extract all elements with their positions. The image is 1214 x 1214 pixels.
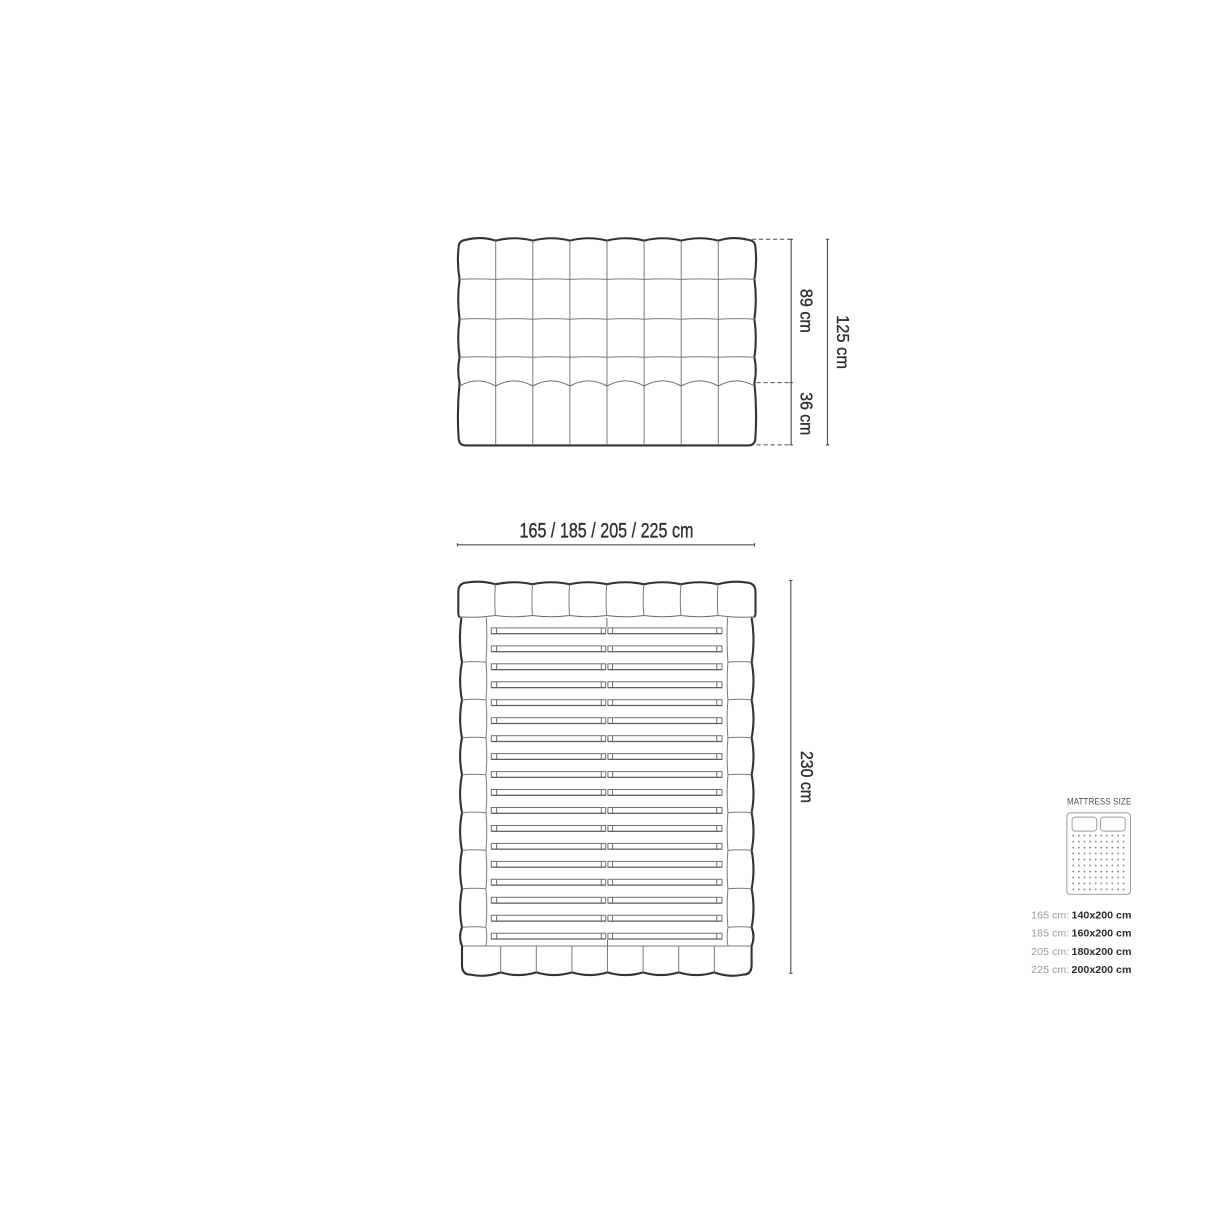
svg-text:225 cm:: 225 cm: bbox=[1031, 965, 1069, 976]
svg-text:165 cm:: 165 cm: bbox=[1031, 910, 1069, 921]
svg-text:36 cm: 36 cm bbox=[797, 392, 817, 435]
svg-text:180x200 cm: 180x200 cm bbox=[1072, 947, 1132, 958]
svg-text:89 cm: 89 cm bbox=[797, 289, 817, 333]
svg-text:MATTRESS SIZE: MATTRESS SIZE bbox=[1067, 797, 1132, 807]
svg-text:125 cm: 125 cm bbox=[833, 315, 853, 369]
svg-text:200x200 cm: 200x200 cm bbox=[1072, 965, 1132, 976]
svg-text:165 / 185 / 205 / 225 cm: 165 / 185 / 205 / 225 cm bbox=[520, 520, 694, 543]
svg-text:185 cm:: 185 cm: bbox=[1031, 929, 1069, 940]
svg-text:205 cm:: 205 cm: bbox=[1031, 947, 1069, 958]
svg-text:160x200 cm: 160x200 cm bbox=[1072, 929, 1132, 940]
svg-text:140x200 cm: 140x200 cm bbox=[1072, 910, 1132, 921]
svg-text:230 cm: 230 cm bbox=[797, 751, 817, 803]
